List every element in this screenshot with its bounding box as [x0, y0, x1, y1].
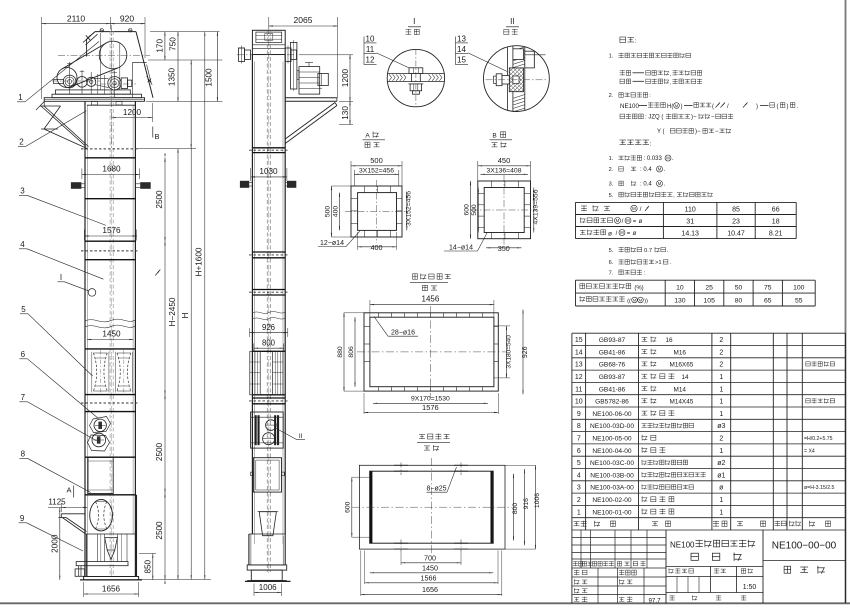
- svg-text:GB93-87: GB93-87: [599, 337, 626, 344]
- svg-text:8.21: 8.21: [769, 230, 783, 237]
- svg-text:80: 80: [735, 298, 743, 305]
- svg-text:14: 14: [457, 45, 466, 54]
- svg-text:H−2450: H−2450: [168, 297, 177, 326]
- svg-text:66: 66: [772, 206, 780, 213]
- svg-text:23: 23: [732, 218, 740, 225]
- svg-text:=: =: [633, 219, 637, 225]
- svg-text:M14: M14: [674, 386, 687, 393]
- svg-text:11: 11: [366, 45, 375, 54]
- svg-text:M: M: [639, 297, 642, 302]
- svg-text:14.13: 14.13: [681, 230, 699, 237]
- svg-text:1450: 1450: [422, 563, 438, 572]
- svg-text:): ): [787, 104, 789, 110]
- svg-text:2: 2: [719, 337, 723, 344]
- svg-text:I: I: [60, 273, 62, 282]
- svg-text:800: 800: [512, 503, 519, 515]
- svg-text::: :: [635, 38, 637, 45]
- svg-text:2500: 2500: [155, 442, 164, 461]
- svg-text:: JZQ (: : JZQ (: [645, 115, 663, 121]
- svg-text:NE100-03B-00: NE100-03B-00: [590, 472, 634, 479]
- svg-text:NE100-03A-00: NE100-03A-00: [590, 485, 634, 492]
- svg-text:II: II: [510, 17, 514, 26]
- svg-text:2.: 2.: [609, 167, 614, 173]
- svg-text:1350: 1350: [168, 67, 177, 86]
- svg-text:55: 55: [795, 298, 803, 305]
- svg-text:M16: M16: [674, 349, 687, 356]
- svg-text:ø: ø: [633, 231, 637, 237]
- svg-text:4: 4: [20, 240, 25, 249]
- svg-text:110: 110: [685, 206, 696, 213]
- svg-text:)−: )−: [695, 129, 701, 135]
- svg-text:)): )): [644, 298, 648, 304]
- svg-text:ø: ø: [639, 219, 643, 225]
- svg-text:50: 50: [735, 285, 743, 292]
- svg-text:1: 1: [719, 399, 723, 406]
- svg-text:3: 3: [577, 485, 581, 492]
- svg-text:170: 170: [156, 39, 165, 53]
- svg-text:4: 4: [577, 472, 581, 479]
- svg-text:15: 15: [457, 56, 466, 65]
- svg-text:8: 8: [577, 423, 581, 430]
- svg-text:10: 10: [676, 285, 684, 292]
- svg-text:M: M: [666, 156, 670, 161]
- svg-text:,: ,: [670, 80, 671, 86]
- svg-text:7.: 7.: [609, 271, 614, 277]
- svg-text:6: 6: [21, 350, 26, 359]
- svg-text:): ): [681, 104, 683, 110]
- svg-text:800: 800: [262, 339, 276, 348]
- svg-text:926: 926: [522, 346, 529, 358]
- svg-text:7: 7: [21, 393, 26, 402]
- svg-text:400: 400: [371, 243, 383, 252]
- svg-text:6: 6: [577, 448, 581, 455]
- svg-text:NE100-02-00: NE100-02-00: [592, 497, 632, 504]
- svg-text:(: (: [712, 104, 714, 110]
- svg-text:1: 1: [719, 448, 723, 455]
- svg-text:M: M: [658, 167, 662, 172]
- svg-text:130: 130: [341, 106, 350, 120]
- svg-text:1125: 1125: [48, 497, 66, 506]
- svg-text:5: 5: [577, 460, 581, 467]
- svg-text:12: 12: [366, 56, 375, 65]
- svg-text:NE100-03C-00: NE100-03C-00: [590, 460, 634, 467]
- svg-text:400: 400: [332, 206, 339, 218]
- svg-text:1006: 1006: [534, 493, 541, 508]
- svg-text:12−ø14: 12−ø14: [320, 240, 344, 247]
- svg-text:ø2: ø2: [717, 460, 725, 467]
- svg-text:3: 3: [20, 187, 25, 196]
- svg-text:1: 1: [18, 93, 23, 102]
- svg-text:1006: 1006: [259, 583, 277, 592]
- svg-text:2110: 2110: [67, 13, 86, 23]
- svg-text:5: 5: [21, 305, 26, 314]
- svg-text:2500: 2500: [155, 521, 164, 540]
- svg-text:4X139=556: 4X139=556: [533, 189, 540, 224]
- svg-text:15: 15: [575, 337, 583, 344]
- svg-text:I: I: [413, 17, 415, 26]
- svg-text:1:50: 1:50: [743, 584, 757, 591]
- svg-text:GB41-86: GB41-86: [599, 386, 626, 393]
- svg-text:,: ,: [670, 71, 671, 77]
- svg-text:926: 926: [262, 323, 275, 332]
- svg-text:NE100-01-00: NE100-01-00: [592, 509, 632, 516]
- svg-text:B: B: [492, 133, 496, 140]
- svg-text:−: −: [715, 129, 719, 135]
- svg-text:NE100: NE100: [620, 103, 639, 110]
- svg-text:3.: 3.: [609, 182, 614, 188]
- svg-text:M: M: [675, 103, 678, 108]
- svg-text:: 0.4: : 0.4: [640, 167, 652, 173]
- svg-text:II: II: [299, 433, 303, 440]
- svg-text:1: 1: [719, 386, 723, 393]
- svg-text:M: M: [620, 230, 624, 235]
- svg-text:11: 11: [575, 386, 582, 393]
- svg-text:10.47: 10.47: [727, 230, 745, 237]
- svg-text:850: 850: [144, 559, 153, 573]
- svg-text:)−: )−: [691, 115, 697, 121]
- svg-text:NE100−00−00: NE100−00−00: [772, 541, 837, 552]
- svg-text:=H/0.2+5.75: =H/0.2+5.75: [804, 436, 833, 442]
- svg-text:NE100-05-00: NE100-05-00: [592, 436, 632, 443]
- svg-text:700: 700: [424, 553, 436, 562]
- svg-text:M: M: [658, 181, 662, 186]
- svg-text:16: 16: [666, 337, 674, 344]
- svg-text:105: 105: [704, 298, 716, 305]
- svg-text:M: M: [633, 297, 636, 302]
- svg-text:2065: 2065: [294, 15, 313, 25]
- svg-text:13: 13: [575, 362, 583, 369]
- svg-text:((: ((: [627, 298, 631, 304]
- svg-text:(%): (%): [634, 286, 643, 292]
- svg-text:H: H: [181, 312, 190, 318]
- svg-text:500: 500: [471, 204, 478, 216]
- svg-text:2: 2: [719, 349, 723, 356]
- svg-text:1: 1: [577, 509, 581, 516]
- svg-text:1030: 1030: [259, 167, 278, 176]
- svg-text:5.: 5.: [609, 248, 614, 254]
- svg-text:750: 750: [169, 37, 178, 51]
- svg-text:500: 500: [370, 156, 383, 165]
- svg-text:0.7: 0.7: [644, 248, 652, 254]
- svg-text:H+1600: H+1600: [195, 247, 204, 276]
- svg-text:130: 130: [674, 298, 686, 305]
- svg-text:1500: 1500: [205, 68, 214, 87]
- svg-text:NE100: NE100: [670, 541, 695, 550]
- svg-text:1: 1: [719, 497, 723, 504]
- svg-text:M: M: [626, 218, 630, 223]
- svg-text:350: 350: [498, 244, 510, 253]
- svg-text:3X152=456: 3X152=456: [406, 191, 413, 226]
- svg-text:1.: 1.: [609, 156, 614, 162]
- svg-text:= X4: = X4: [804, 448, 815, 454]
- svg-text:M: M: [632, 206, 636, 211]
- svg-text:(: (: [777, 104, 779, 110]
- svg-text:9X170=1530: 9X170=1530: [411, 396, 450, 403]
- svg-text:18: 18: [772, 218, 780, 225]
- svg-text:6.: 6.: [609, 260, 614, 266]
- svg-text:M16X65: M16X65: [670, 362, 694, 369]
- svg-text:2.: 2.: [609, 93, 614, 99]
- svg-text:NE100-04-00: NE100-04-00: [592, 448, 632, 455]
- svg-text:2: 2: [577, 497, 581, 504]
- svg-text:ø: ø: [608, 230, 612, 237]
- svg-text:28−ø16: 28−ø16: [391, 330, 415, 337]
- svg-text:1: 1: [719, 509, 723, 516]
- svg-text:3X152=456: 3X152=456: [359, 167, 394, 174]
- svg-text:1.: 1.: [609, 54, 614, 60]
- svg-text:ø=H-3.15/2.5: ø=H-3.15/2.5: [804, 485, 835, 491]
- svg-text:B: B: [154, 132, 159, 141]
- svg-text:85: 85: [732, 206, 740, 213]
- svg-text:GB5782-86: GB5782-86: [595, 399, 629, 406]
- svg-text:NE100-03D-00: NE100-03D-00: [590, 423, 634, 430]
- svg-text:1450: 1450: [102, 330, 121, 339]
- svg-text:ø3: ø3: [717, 423, 725, 430]
- svg-text:M: M: [616, 218, 620, 223]
- svg-text:A: A: [66, 486, 71, 495]
- svg-text:3X136=408: 3X136=408: [487, 167, 522, 174]
- svg-text:916: 916: [523, 498, 530, 510]
- svg-text:1456: 1456: [422, 294, 440, 303]
- svg-text:H(: H(: [667, 104, 673, 110]
- svg-text:806: 806: [348, 346, 355, 358]
- svg-text:100: 100: [793, 285, 805, 292]
- svg-text:ø: ø: [719, 485, 724, 492]
- svg-text:14: 14: [682, 374, 690, 381]
- svg-text:1680: 1680: [102, 165, 121, 174]
- svg-text:600: 600: [463, 204, 470, 216]
- svg-text:2: 2: [719, 436, 723, 443]
- svg-text:2: 2: [719, 362, 723, 369]
- svg-text:65: 65: [764, 298, 772, 305]
- svg-text:75: 75: [764, 285, 772, 292]
- svg-text:2: 2: [19, 138, 24, 147]
- svg-text:/: /: [640, 206, 642, 213]
- svg-text:880: 880: [337, 346, 344, 358]
- svg-text:450: 450: [498, 156, 511, 165]
- svg-text:: 0.4: : 0.4: [640, 182, 652, 188]
- svg-text:14: 14: [575, 349, 583, 356]
- svg-text:500: 500: [324, 206, 331, 218]
- svg-text:M14X45: M14X45: [670, 399, 694, 406]
- svg-text:GB41-86: GB41-86: [599, 349, 626, 356]
- svg-text:=: =: [627, 231, 631, 237]
- svg-text:1576: 1576: [102, 226, 121, 235]
- svg-text:8: 8: [21, 450, 26, 459]
- svg-text:GB93-87: GB93-87: [599, 374, 626, 381]
- svg-text:,: ,: [673, 193, 674, 199]
- svg-text:1: 1: [719, 411, 723, 418]
- svg-text:13: 13: [457, 34, 466, 43]
- svg-text::: :: [649, 93, 650, 99]
- svg-text:2500: 2500: [155, 190, 164, 209]
- svg-text:7: 7: [577, 436, 581, 443]
- svg-text:1656: 1656: [102, 584, 121, 593]
- svg-text:): ): [756, 104, 758, 110]
- svg-text:14−ø14: 14−ø14: [449, 245, 473, 252]
- svg-text:9: 9: [577, 411, 581, 418]
- svg-text:: 0.033: : 0.033: [644, 156, 663, 162]
- svg-text:9: 9: [20, 514, 25, 523]
- svg-text:GB68-76: GB68-76: [599, 362, 626, 369]
- svg-text:1200: 1200: [341, 68, 350, 87]
- svg-text:1576: 1576: [422, 403, 439, 412]
- svg-text:Y (: Y (: [657, 129, 665, 135]
- svg-text:25: 25: [705, 285, 713, 292]
- svg-text:1: 1: [719, 374, 723, 381]
- svg-text:NE100-06-00: NE100-06-00: [592, 411, 632, 418]
- svg-text:10: 10: [575, 399, 583, 406]
- svg-text:>1: >1: [655, 260, 662, 266]
- svg-text:5.: 5.: [609, 193, 614, 199]
- svg-text:ø1: ø1: [717, 472, 725, 479]
- svg-text::: :: [650, 141, 652, 148]
- svg-text:3X180=540: 3X180=540: [505, 335, 512, 369]
- svg-text:600: 600: [345, 501, 352, 513]
- svg-text:1566: 1566: [421, 574, 437, 583]
- svg-text:12: 12: [575, 374, 583, 381]
- svg-text:10: 10: [366, 34, 375, 43]
- svg-text:8−ø25: 8−ø25: [426, 486, 446, 493]
- svg-text:1656: 1656: [422, 585, 438, 594]
- svg-text:1200: 1200: [123, 108, 142, 117]
- svg-text:−: −: [711, 115, 715, 121]
- svg-text:31: 31: [686, 218, 694, 225]
- svg-text:A: A: [365, 133, 370, 140]
- svg-text:920: 920: [120, 13, 134, 23]
- svg-text:97.7: 97.7: [648, 597, 661, 604]
